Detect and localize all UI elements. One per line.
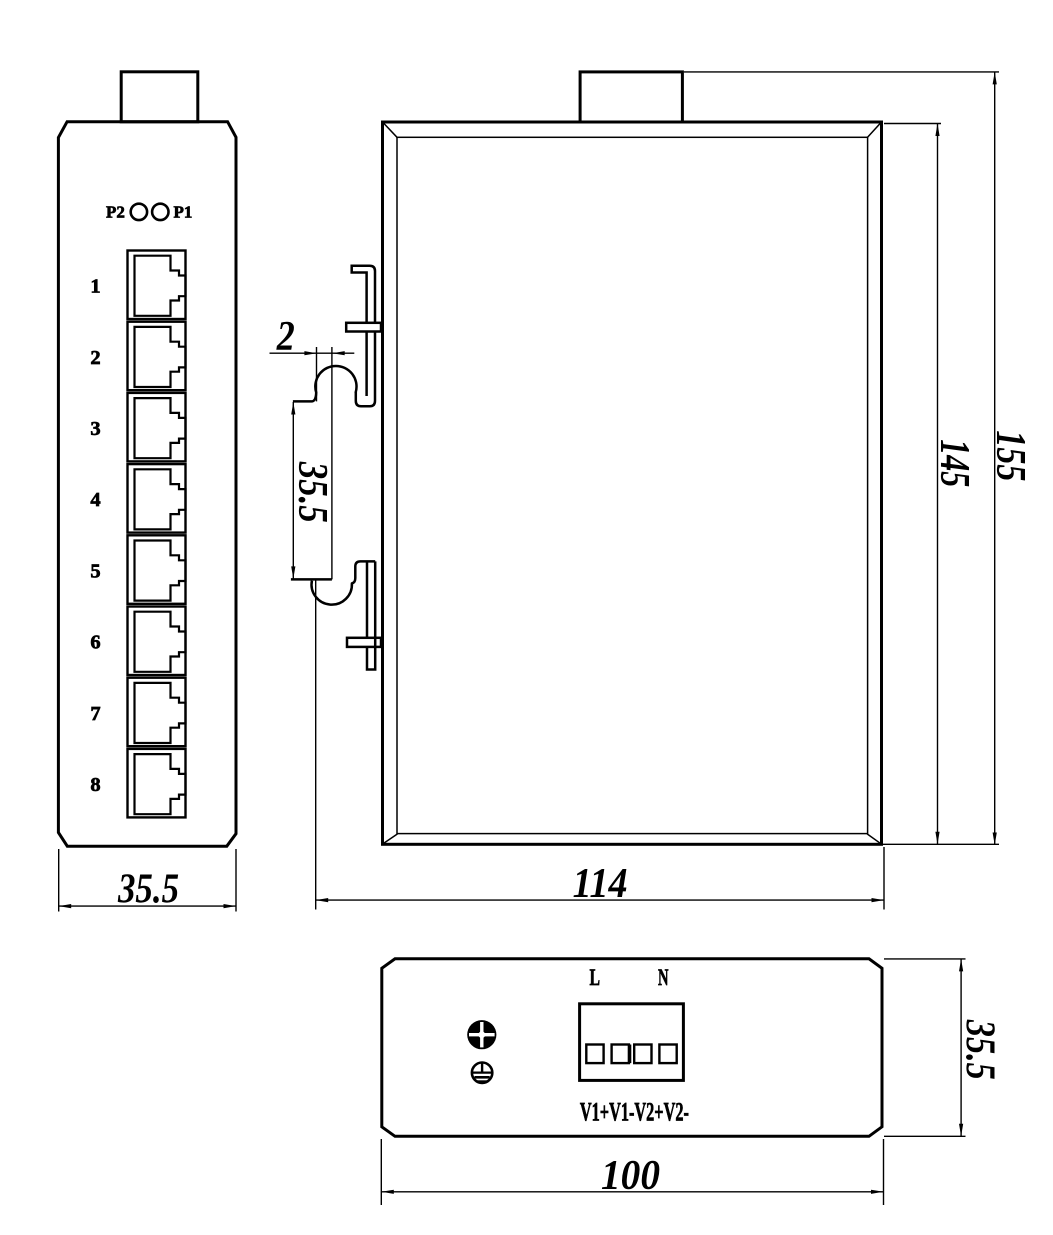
svg-text:L: L <box>590 965 601 990</box>
svg-text:2: 2 <box>276 314 295 360</box>
svg-text:6: 6 <box>90 632 100 654</box>
svg-text:1: 1 <box>90 276 100 298</box>
svg-text:P1: P1 <box>174 203 193 222</box>
svg-text:N: N <box>658 965 669 990</box>
svg-text:8: 8 <box>90 774 100 796</box>
svg-text:100: 100 <box>601 1153 660 1199</box>
svg-text:2: 2 <box>90 347 100 369</box>
svg-text:5: 5 <box>90 560 100 582</box>
svg-text:4: 4 <box>90 489 100 511</box>
svg-text:35.5: 35.5 <box>289 461 335 523</box>
svg-text:P2: P2 <box>106 203 125 222</box>
svg-text:V1+V1-V2+V2-: V1+V1-V2+V2- <box>580 1097 689 1126</box>
svg-text:35.5: 35.5 <box>956 1019 1002 1080</box>
svg-text:3: 3 <box>90 418 100 440</box>
svg-text:145: 145 <box>931 439 977 487</box>
svg-text:35.5: 35.5 <box>117 867 179 913</box>
svg-text:114: 114 <box>573 861 628 907</box>
svg-text:155: 155 <box>987 430 1033 481</box>
svg-text:7: 7 <box>90 703 100 725</box>
